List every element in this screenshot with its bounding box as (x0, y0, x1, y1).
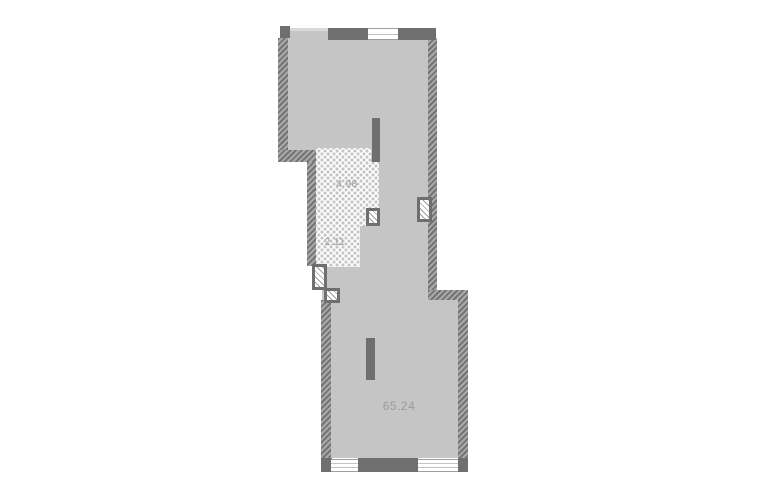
room-area-label-wet-lower: 2.11 (320, 238, 350, 248)
wall-bottom-right-corner (458, 458, 468, 472)
room-area-label-wet-upper: 4.98 (332, 180, 362, 190)
window-icon-top (368, 28, 398, 40)
floor-main-room (331, 290, 458, 458)
wall-top-segment-2 (398, 28, 436, 40)
floor-top-room (288, 30, 428, 162)
exterior-wall-step-left (278, 150, 316, 162)
window-icon-bottom-right (418, 459, 458, 472)
window-icon-bottom-left (331, 459, 358, 472)
vent-shaft-icon-wet-zone (366, 208, 380, 226)
wall-bottom-middle-segment (358, 458, 418, 472)
exterior-wall-right-upper (428, 38, 437, 290)
vent-shaft-icon-left-tall (312, 264, 327, 290)
vent-shaft-icon-left-small (324, 288, 340, 303)
floor-plan-canvas: 4.98 2.11 65.24 (0, 0, 760, 490)
exterior-wall-right-lower (458, 300, 468, 458)
wall-top-opening-line (290, 28, 328, 31)
wall-top-left-block (280, 26, 290, 38)
exterior-wall-left-middle (307, 162, 316, 266)
exterior-wall-step-right (428, 290, 468, 300)
vent-shaft-icon-right-wall (417, 197, 432, 222)
exterior-wall-left-lower (321, 300, 331, 458)
exterior-wall-left-upper (278, 38, 288, 152)
partition-top-room (372, 118, 380, 162)
wall-top-segment-1 (328, 28, 368, 40)
room-area-label-main: 65.24 (374, 400, 424, 412)
partition-main-room (366, 338, 375, 380)
exterior-notch (308, 290, 322, 304)
